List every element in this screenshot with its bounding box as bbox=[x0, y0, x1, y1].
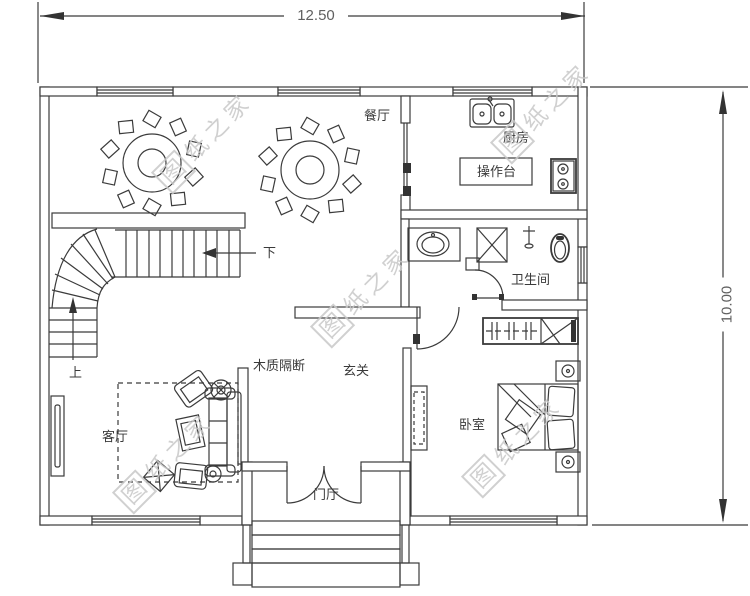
kitchen-stove bbox=[551, 159, 576, 193]
room-label-dining: 餐厅 bbox=[364, 109, 390, 122]
stairs-down-label: 下 bbox=[263, 246, 276, 259]
dimension-width-label: 12.50 bbox=[284, 8, 348, 23]
room-label-partition: 木质隔断 bbox=[253, 359, 305, 372]
window-top-1 bbox=[97, 87, 173, 96]
window-top-2 bbox=[278, 87, 360, 96]
bathroom-door bbox=[472, 270, 504, 300]
window-top-3 bbox=[453, 87, 532, 96]
window-bedroom bbox=[450, 516, 557, 525]
bathroom-vanity bbox=[408, 228, 460, 261]
shower-head bbox=[523, 226, 535, 248]
room-label-bathroom: 卫生间 bbox=[511, 273, 550, 286]
armchair-top bbox=[173, 369, 214, 409]
nightstand-bottom bbox=[556, 452, 580, 472]
room-label-hallway: 玄关 bbox=[343, 364, 369, 377]
floor-plan-canvas: 12.50 10.00 餐厅 厨房 操作台 卫生间 玄关 木质隔断 客厅 卧室 … bbox=[0, 0, 750, 596]
room-label-counter: 操作台 bbox=[477, 165, 516, 178]
room-label-bedroom: 卧室 bbox=[459, 418, 485, 431]
bedroom-dresser bbox=[411, 386, 427, 450]
wardrobe bbox=[483, 318, 578, 344]
staircase bbox=[49, 229, 256, 360]
room-label-living: 客厅 bbox=[102, 430, 128, 443]
tv-cabinet bbox=[51, 396, 64, 476]
kitchen-sliding-door bbox=[403, 123, 411, 196]
dimension-height-label: 10.00 bbox=[720, 278, 735, 332]
nightstand-top bbox=[556, 361, 580, 381]
kitchen-sink bbox=[470, 97, 514, 127]
squat-toilet bbox=[551, 234, 569, 262]
window-bath-east bbox=[578, 247, 587, 283]
entrance-steps bbox=[233, 521, 419, 587]
dining-table-2 bbox=[259, 117, 361, 222]
window-living bbox=[92, 516, 200, 525]
shower-area bbox=[477, 228, 507, 262]
stairs-up-label: 上 bbox=[69, 366, 82, 379]
room-label-foyer: 门厅 bbox=[313, 488, 339, 501]
